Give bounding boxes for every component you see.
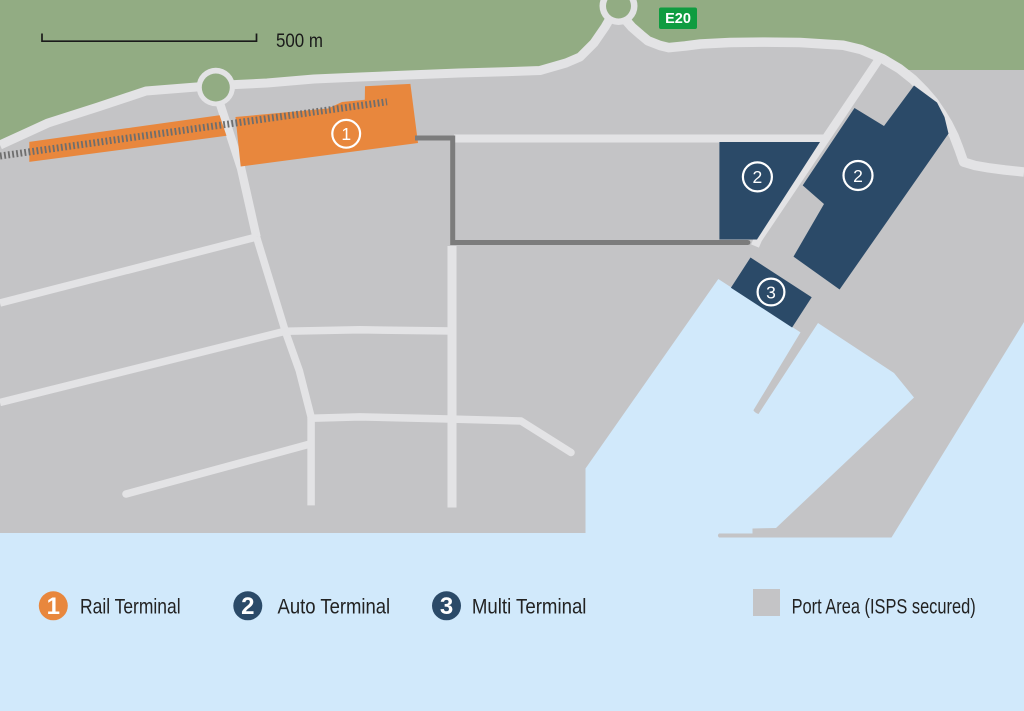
svg-text:3: 3 [440,593,453,620]
svg-text:E20: E20 [665,11,691,27]
svg-text:1: 1 [47,593,60,620]
svg-text:500 m: 500 m [276,29,323,51]
svg-text:Port Area (ISPS secured): Port Area (ISPS secured) [792,595,976,619]
svg-text:1: 1 [341,124,351,144]
svg-text:Multi Terminal: Multi Terminal [472,595,587,618]
svg-text:2: 2 [753,167,763,187]
svg-text:2: 2 [241,593,254,620]
svg-text:Auto Terminal: Auto Terminal [278,595,391,618]
svg-text:Rail Terminal: Rail Terminal [80,595,181,619]
svg-text:2: 2 [853,166,863,186]
svg-text:3: 3 [766,282,776,302]
